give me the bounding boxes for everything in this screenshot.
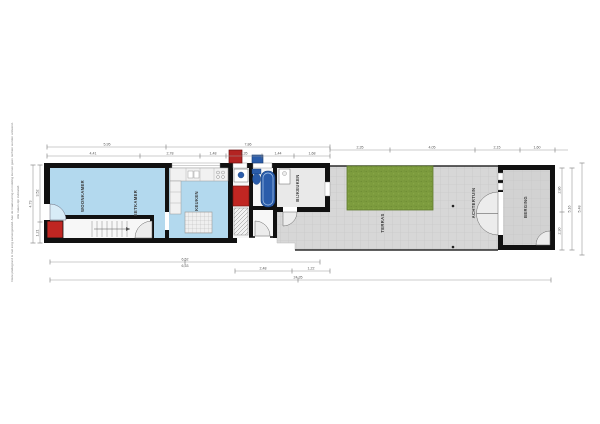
dim-left-col2: 3,52 1,21	[36, 165, 43, 243]
bijkeuken-window	[325, 182, 330, 196]
floorplan-drawing: WOONKAMER EETKAMER KEUKEN BIJKEUKEN TERR…	[0, 0, 600, 424]
svg-text:1,60: 1,60	[534, 146, 541, 150]
svg-text:1,35: 1,35	[241, 152, 248, 156]
wall-keuken-partition	[165, 168, 169, 212]
dim-top-row1: 5,95 7,86	[47, 143, 330, 150]
svg-text:2,86: 2,86	[558, 187, 562, 194]
svg-text:4,05: 4,05	[429, 146, 436, 150]
svg-text:5,95: 5,95	[104, 143, 111, 147]
utility-window	[233, 163, 247, 168]
dim-bottom-row1: 6,52 6,53	[50, 258, 320, 269]
wall-keuken-partition-stub	[165, 230, 169, 238]
shed-wall-bottom	[498, 245, 555, 250]
dim-right-col3: 5,48	[578, 163, 585, 255]
shed-wall-right	[550, 165, 555, 250]
kitchen-table	[185, 212, 212, 233]
drain-dot	[452, 246, 455, 249]
shed-wall-top	[498, 165, 555, 170]
washbasin	[234, 169, 248, 182]
badkamer-window	[253, 163, 272, 168]
svg-text:2,30: 2,30	[558, 228, 562, 235]
wall-keuken-utility	[228, 168, 233, 238]
wall-backhall-right	[273, 212, 277, 238]
bijkeuken-door-gap	[283, 207, 297, 212]
room-label-terras: TERRAS	[380, 213, 385, 232]
dim-bottom-row3: 24,35	[50, 276, 551, 283]
shower-unit	[233, 186, 249, 206]
dim-bottom-row2: 2,48 1,22	[235, 267, 330, 274]
svg-text:4,41: 4,41	[90, 152, 97, 156]
dim-right-col1: 2,86 2,30	[558, 168, 565, 250]
svg-text:1,22: 1,22	[308, 267, 315, 271]
floorplan-canvas: WOONKAMER EETKAMER KEUKEN BIJKEUKEN TERR…	[0, 0, 600, 424]
dim-top-right-row: 2,35 4,05 2,15 1,60	[330, 146, 568, 153]
room-label-woonkamer: WOONKAMER	[80, 180, 85, 212]
svg-text:3,52: 3,52	[36, 190, 40, 197]
svg-text:4,73: 4,73	[29, 201, 33, 208]
shed-window-slit	[498, 173, 503, 180]
disclaimer-line1: Deze plattegrond is met zorg samengestel…	[10, 122, 14, 281]
grass-area	[347, 166, 433, 210]
svg-text:5,16: 5,16	[568, 206, 572, 213]
svg-text:2,15: 2,15	[494, 146, 501, 150]
svg-text:24,35: 24,35	[294, 276, 303, 280]
room-label-bijkeuken: BIJKEUKEN	[295, 174, 300, 201]
svg-text:6,52: 6,52	[182, 258, 189, 262]
svg-text:2,78: 2,78	[167, 152, 174, 156]
svg-text:7,86: 7,86	[245, 143, 252, 147]
room-label-berging: BERGING	[523, 196, 528, 218]
meterkast	[47, 221, 63, 238]
room-label-eetkamer: EETKAMER	[133, 190, 138, 216]
kitchen-counter	[170, 168, 228, 181]
svg-text:2,35: 2,35	[357, 146, 364, 150]
svg-text:1,48: 1,48	[210, 152, 217, 156]
room-label-achtertuin: ACHTERTUIN	[471, 188, 476, 219]
svg-text:6,53: 6,53	[182, 264, 189, 268]
svg-text:1,68: 1,68	[309, 152, 316, 156]
svg-text:1,21: 1,21	[36, 230, 40, 237]
svg-text:1,44: 1,44	[275, 152, 282, 156]
bathtub	[261, 171, 275, 207]
boiler-unit	[279, 169, 290, 184]
shed-window-slit	[498, 183, 503, 190]
toilet	[252, 169, 261, 185]
svg-text:5,48: 5,48	[578, 206, 582, 213]
front-door-gap	[44, 204, 50, 220]
room-label-keuken: KEUKEN	[194, 191, 199, 211]
disclaimer-line2: Alle maten zijn indicatief.	[16, 185, 20, 219]
wall-bottom	[44, 238, 237, 243]
drain-dot	[452, 205, 455, 208]
kitchen-cabinet	[170, 181, 181, 214]
dim-right-col2: 5,16	[568, 168, 575, 250]
shed-doors-gap	[498, 192, 503, 235]
dim-left-col1: 4,73	[29, 165, 36, 243]
dim-top-row2: 4,41 2,78 1,48 1,35 1,44 1,68	[47, 152, 330, 159]
basement-stairs	[234, 208, 248, 235]
svg-text:2,48: 2,48	[260, 267, 267, 271]
